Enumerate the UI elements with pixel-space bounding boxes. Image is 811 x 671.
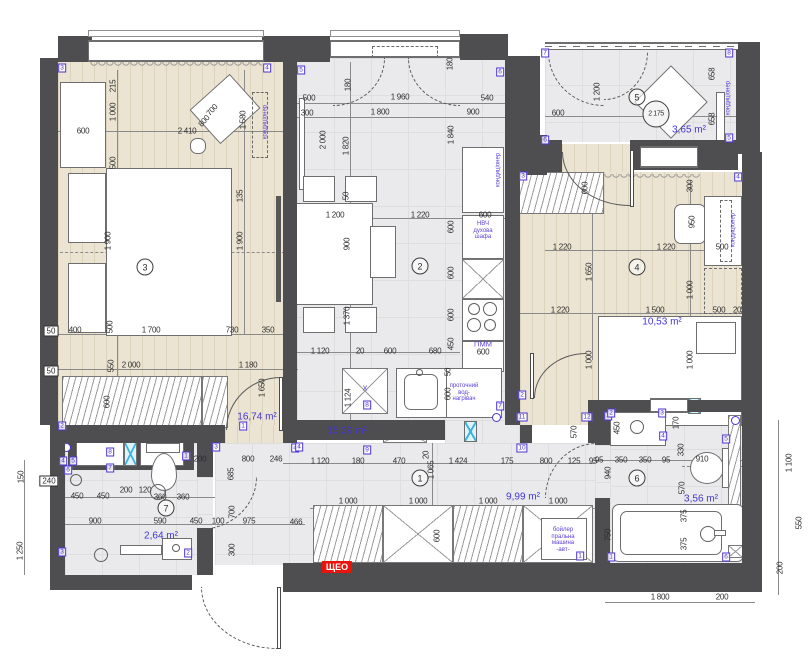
faucet-icon [416,369,423,376]
dimension-label: 940 [604,467,613,479]
dimension-label: 135 [236,190,245,202]
detail-marker: 5 [69,457,77,466]
dimension-label: 180 [352,457,364,466]
hall-wardrobe-mirror [383,505,453,563]
wall-top-pier [460,34,508,60]
dimension-label: 120 [139,486,151,495]
toilet-tank [146,443,180,453]
dimension-label: 150 [17,471,26,483]
dimension-label: 1 960 [391,93,410,102]
detail-marker: 8 [363,401,371,410]
dimension-label: 180 [446,58,455,70]
dimension-label: 1 000 [109,103,118,122]
dimension-label: 215 [109,80,118,92]
floor-room4-low [520,400,588,425]
dimension-label: 658 [708,68,717,80]
detail-marker: 1 [576,552,584,561]
dimension-label: 50 [342,192,351,200]
dimension-label: 20 [733,306,741,315]
ac-label: кондиціонер [263,105,270,139]
wall-balcony-right [736,42,760,154]
dimension-label: 1 900 [104,232,113,251]
dimension-label: 1 100 [785,454,794,473]
entrance-door-leaf [277,587,281,649]
room3-door-leaf [279,377,283,431]
detail-marker: 1 [239,422,247,431]
dimension-label: 900 [467,108,479,117]
dimension-label: 20 [356,347,364,356]
dimension-label: 590 [154,517,166,526]
vent-box [728,545,743,558]
balcony-glazing [545,42,738,50]
detail-marker: 2 [184,549,192,558]
faucet-icon [172,544,180,552]
dimension-label: 170 [672,417,681,429]
balcony-door-marking [372,46,438,58]
dimension-label: 600 [479,211,491,220]
dimension-label: 1 820 [342,137,351,156]
room-area-label: 3,56 m² [684,494,718,505]
detail-marker: 8 [106,448,114,457]
dimension-label: 500 [106,321,115,333]
dimension-label: 1 180 [239,361,258,370]
curtain-room3 [90,62,262,74]
dimension-label: 1 650 [585,263,594,282]
detail-marker: 4 [263,64,271,73]
dimension-label: 600 [77,127,89,136]
room-area-label: 10,53 m² [642,317,681,328]
dimension-label: 550 [795,517,804,529]
wall-top-pier [58,36,92,62]
detail-marker: 10 [516,444,527,453]
side-table [190,138,206,154]
chair [370,226,396,278]
dimension-label: 1 800 [651,593,670,602]
bath6-vent-window [650,398,688,413]
detail-marker: 5 [722,435,730,444]
detail-marker: 1 [182,452,190,461]
dimension-label: 500 [303,94,315,103]
dimension-label: 975 [243,517,255,526]
dimension-label: 2 410 [178,127,197,136]
wardrobe-room3-small [202,376,228,428]
dimension-label: 500 [713,306,725,315]
ac-label: кондиціонер [496,153,503,187]
dimension-label: 1 000 [479,497,498,506]
dimension-label: 350 [615,456,627,465]
dimension-label: 1 220 [553,243,572,252]
dimension-label: 246 [270,455,282,464]
wall-partition-2-4 [505,172,520,425]
dimension-label: 500 [716,243,728,252]
hall-wardrobe [313,505,383,563]
dimension-label: 375 [680,538,689,550]
wall-kitchen-bottom [297,420,445,440]
dimension-label: 570 [678,482,687,494]
detail-marker: 6 [541,136,549,145]
dim-line [283,117,505,118]
room4-door-leaf [530,353,534,399]
dimension-label: 1 500 [646,306,665,315]
wall-bottom-main [283,563,757,592]
cabinet-x-label: X [362,384,367,393]
dimension-label: 1 124 [344,389,353,408]
dimension-label: 600 [447,267,456,279]
wall-room5-left [530,140,562,172]
dimension-label: 350 [262,326,274,335]
dimension-label: 600 [433,530,442,542]
hob-burner [467,318,481,332]
dimension-label: 900 [343,238,352,250]
dim-line [283,103,505,104]
dimension-label: 470 [393,457,405,466]
dimension-label: 540 [481,94,493,103]
detail-marker: 8 [725,49,733,58]
room-number: 6 [629,470,646,487]
wall-bottom-left [50,575,192,590]
dimension-label: 600 [384,347,396,356]
floor-plan: 6002 4102151 0005001 5807008001351 9001 … [0,0,811,671]
dishwasher-label: ПММ [474,340,492,349]
kitchen-sink [404,374,438,410]
dimension-label: 1 900 [236,232,245,251]
detail-marker: 4 [659,432,667,441]
dimension-label: 658 [708,113,717,125]
dimension-label: 1 220 [657,243,676,252]
dimension-label: 600 [552,109,564,118]
detail-marker: 2 [518,391,526,400]
room-area-label: 9,99 m² [506,492,540,503]
wall-bath7-right-low [197,528,213,575]
detail-marker: 7 [106,464,114,473]
hall-wardrobe [453,505,523,563]
room-number: 5 [629,89,646,106]
floor-drain [94,548,108,562]
detail-marker: 3 [658,409,666,418]
shower-head [70,474,82,486]
tv-panel [276,196,281,302]
window-bench [640,146,698,168]
dimension-label: 1 250 [16,542,25,561]
dimension-label: 1 000 [549,497,568,506]
hob-burner [483,302,497,316]
dimension-label: 1 220 [411,211,430,220]
dimension-label: 1 424 [449,457,468,466]
detail-marker: 3 [212,443,220,452]
room-area-label: 15,39 m² [327,426,366,437]
dimension-label: 500 [109,157,118,169]
detail-marker: 6 [722,553,730,562]
chair [303,176,335,202]
dimension-label: 450 [97,492,109,501]
dimension-label: 2 000 [319,131,328,150]
dimension-label: 50 [444,368,453,376]
dim-line [40,369,298,370]
dimension-label: 600 [581,182,590,194]
hob-burner [468,303,480,315]
dimension-label: 200 [716,593,728,602]
dimension-label: 50 [44,326,59,337]
dimension-label: 680 [429,347,441,356]
wall-right-outer [742,152,762,592]
dimension-label: 800 [242,455,254,464]
dimension-label: 180 [344,79,353,91]
glass-block [124,442,137,466]
water-heater-label: проточний вод- нагрівач [450,383,479,403]
dim-line [65,497,215,498]
dim-line [605,602,755,603]
detail-marker: 1 [607,553,615,562]
dimension-label: 360 [177,493,189,502]
room-number: 7 [158,500,175,517]
dimension-label: 2 000 [122,361,141,370]
bath7-bench [120,545,162,555]
dimension-label: 240 [39,476,58,487]
dimension-label: 1 650 [258,379,267,398]
detail-marker: 12 [581,413,592,422]
dimension-label: 600 [103,396,112,408]
wall-partition-3-2 [283,43,297,425]
dimension-label: 1 000 [585,351,594,370]
detail-marker: 3 [58,64,66,73]
dimension-label: 600 [447,309,456,321]
detail-marker: 3 [519,172,527,181]
room-area-label: 3,65 m² [672,125,706,136]
dimension-label: 300 [686,180,695,192]
chair [303,307,335,333]
dimension-label: 95 [595,456,603,465]
dimension-label: 330 [677,444,686,456]
vent-symbol [731,416,740,425]
wall-stub [283,425,297,443]
tub-mixer [714,530,726,536]
dimension-label: 950 [688,216,697,228]
dimension-label: 685 [227,468,236,480]
oven-label: НВЧ духова шафа [473,221,492,241]
dimension-label: 900 [89,517,101,526]
dimension-label: 600 [447,221,456,233]
dimension-label: 750 [604,529,613,541]
dimension-label: 450 [190,517,202,526]
dimension-label: 1 580 [239,111,248,130]
room-area-label: 2,64 m² [144,531,178,542]
dimension-label: 300 [301,109,313,118]
kitchen-unit [462,259,504,299]
elevation-mark: 2 175 [643,101,670,128]
dimension-label: 1 120 [311,347,330,356]
room-number: 2 [412,258,429,275]
detail-marker: 11 [517,413,528,422]
dimension-label: 600 [477,348,489,357]
dimension-label: 50 [44,366,59,377]
balcony-railing [330,30,460,37]
dimension-label: 1 840 [447,126,456,145]
dimension-label: 95 [662,456,670,465]
detail-marker: 5 [725,134,733,143]
detail-marker: 7 [541,49,549,58]
dimension-label: 100 [212,517,224,526]
detail-marker: 9 [363,446,371,455]
dimension-label: 730 [226,326,238,335]
detail-marker: 2 [58,422,66,431]
dimension-label: 450 [613,422,622,434]
detail-marker: 4 [734,173,742,182]
dimension-label: 1 200 [593,83,602,102]
dimension-label: 375 [680,510,689,522]
dimension-label: 125 [568,457,580,466]
electrical-panel-badge: ЩЕО [322,561,352,573]
dimension-label: 1 220 [551,306,570,315]
pillow [68,173,106,243]
balcony-railing [88,30,264,37]
dimension-label: 200 [776,562,785,574]
bath7-counter [76,442,124,466]
detail-marker: 4 [295,443,303,452]
hob-burner [484,319,496,331]
wardrobe-room3 [62,376,202,428]
balcony-door-leaf [630,150,634,207]
detail-marker: 6 [496,68,504,77]
dimension-label: 466 [290,518,302,527]
dimension-label: 200 [120,486,132,495]
dimension-label: 1 000 [339,497,358,506]
dimension-label: 700 [228,506,237,518]
glass-block [464,421,477,442]
detail-marker: 2 [607,409,615,418]
ac-label: кондиціонер [731,213,738,247]
dimension-label: 910 [696,455,708,464]
dimension-label: 1 000 [409,497,428,506]
dimension-label: 200 [194,455,206,464]
dimension-label: 450 [71,492,83,501]
wall-pier [520,425,532,443]
boiler-washer-label: бойлер пральна машина -авт- [551,527,574,553]
vent-symbol [492,413,501,422]
entrance-door-arc [201,587,277,649]
pillow [696,322,736,354]
dimension-label: 1 700 [142,326,161,335]
detail-marker: 4 [59,457,67,466]
room-number: 4 [629,259,646,276]
wall-room3-bottom [55,425,225,443]
detail-marker: 6 [64,466,72,475]
dimension-label: 1 000 [686,281,695,300]
detail-marker: 7 [496,402,504,411]
room-number: 1 [412,470,429,487]
bed-room3 [106,168,232,336]
dimension-label: 570 [570,426,579,438]
basin [630,420,644,434]
dimension-label: 800 [540,457,552,466]
wall-bath7-left [50,425,65,590]
window-room3 [88,40,264,62]
dimension-label: 1 370 [343,307,352,326]
dimension-label: 1 000 [686,351,695,370]
dimension-label: 300 [228,544,237,556]
dimension-label: 1 800 [371,108,390,117]
dimension-label: 350 [639,456,651,465]
dimension-label: 1 200 [326,211,345,220]
dresser [60,82,106,168]
dimension-label: 550 [107,360,116,372]
dimension-label: 20 [422,451,431,459]
dimension-label: 450 [447,338,456,350]
detail-marker: 5 [297,66,305,75]
dimension-label: 175 [501,457,513,466]
dimension-label: 400 [69,326,81,335]
detail-marker: 3 [58,548,66,557]
room-number: 3 [137,259,154,276]
pillow [68,263,106,333]
ac-label: кондиціонер [726,81,733,115]
dimension-label: 1 120 [311,457,330,466]
